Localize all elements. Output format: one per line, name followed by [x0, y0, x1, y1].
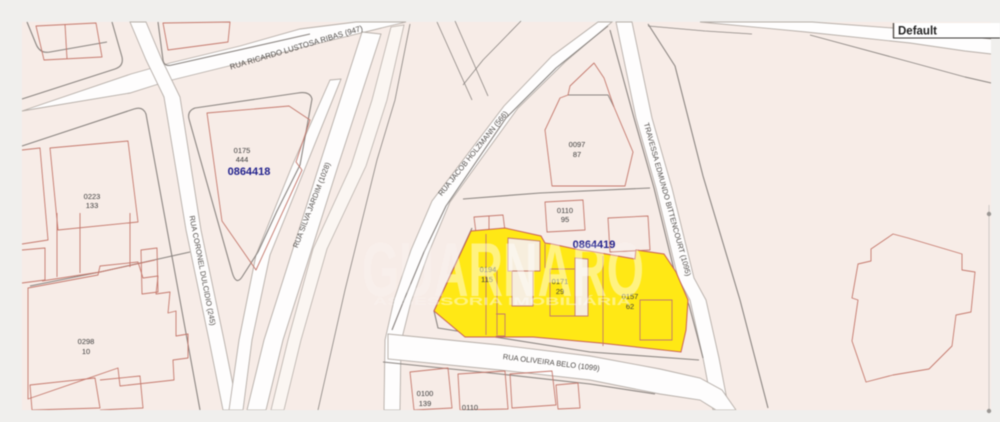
svg-text:0223: 0223 [84, 192, 101, 201]
svg-text:0100: 0100 [417, 389, 434, 398]
svg-text:10: 10 [82, 347, 90, 356]
svg-text:0298: 0298 [78, 337, 95, 346]
svg-text:95: 95 [561, 215, 569, 224]
svg-text:0864418: 0864418 [228, 166, 271, 178]
svg-text:139: 139 [419, 399, 432, 408]
svg-text:0097: 0097 [569, 140, 586, 149]
svg-text:0175: 0175 [234, 146, 251, 155]
svg-text:133: 133 [86, 201, 99, 210]
svg-text:0110: 0110 [557, 206, 573, 215]
svg-text:444: 444 [236, 155, 249, 164]
svg-text:87: 87 [573, 150, 581, 159]
svg-text:Default: Default [898, 26, 937, 38]
